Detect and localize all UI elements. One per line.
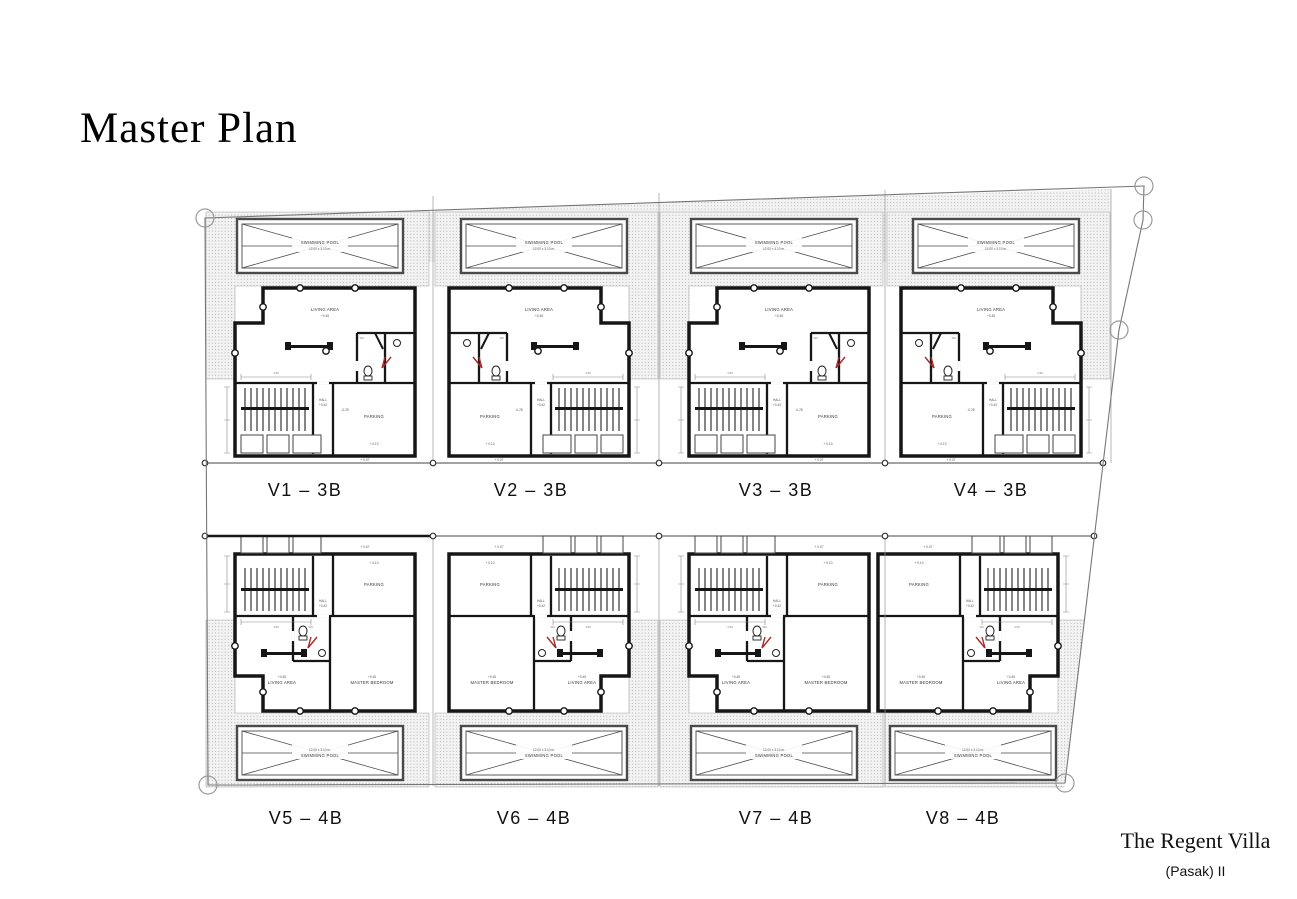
- villa-label-v7: V7 – 4B: [739, 808, 814, 828]
- villa-plan-v8: [864, 536, 1087, 787]
- villa-label-v3: V3 – 3B: [739, 480, 814, 500]
- villa-label-v6: V6 – 4B: [497, 808, 572, 828]
- site-plan-drawing: SWIMMING POOL 12.00 x 3.10 m.: [0, 0, 1297, 899]
- master-plan-sheet: Master Plan SWIMMING POOL 12.00 x 3.10 m…: [0, 0, 1297, 899]
- villa-label-v1: V1 – 3B: [268, 480, 343, 500]
- villa-label-v8: V8 – 4B: [926, 808, 1001, 828]
- villa-plan-v6: [435, 536, 658, 787]
- villa-plan-v7: [660, 536, 883, 787]
- title-block: The Regent Villa (Pasak) II: [1098, 828, 1293, 879]
- project-name: The Regent Villa: [1098, 828, 1293, 854]
- villa-label-v5: V5 – 4B: [269, 808, 344, 828]
- villa-label-v2: V2 – 3B: [494, 480, 569, 500]
- villa-plan-v4: [887, 212, 1110, 462]
- villa-plan-v2: [435, 212, 658, 462]
- villa-plan-v1: [206, 212, 429, 462]
- project-phase: (Pasak) II: [1098, 863, 1293, 879]
- villa-label-v4: V4 – 3B: [954, 480, 1029, 500]
- villa-plan-v5: [206, 536, 429, 787]
- villa-plan-v3: [660, 212, 883, 462]
